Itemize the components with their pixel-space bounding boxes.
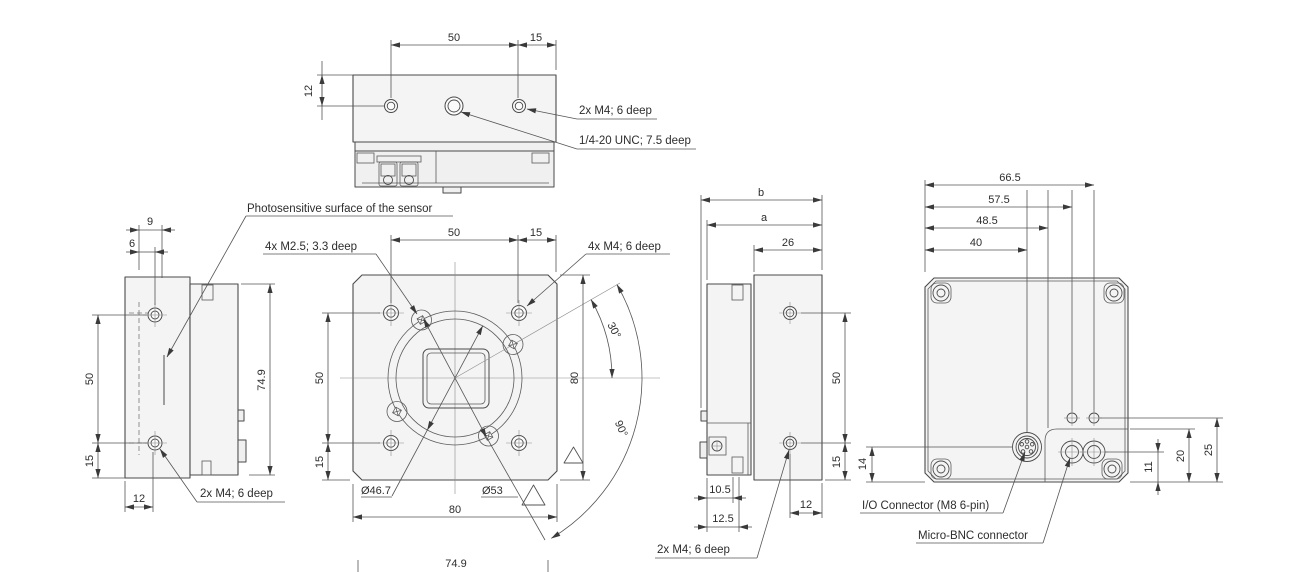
right-dim-a: a — [761, 212, 768, 224]
back-dim-57-5: 57.5 — [988, 194, 1009, 206]
right-dim-10-5: 10.5 — [709, 484, 730, 496]
top-view-tab — [443, 187, 461, 193]
back-dim-20: 20 — [1175, 450, 1187, 462]
front-view: Ø46.7 Ø53 30° 90° 50 15 50 15 80 — [263, 227, 670, 572]
front-dim-bottom-80: 80 — [449, 504, 461, 516]
front-dia-46-7: Ø46.7 — [361, 485, 391, 497]
back-dim-40: 40 — [970, 237, 982, 249]
front-label-m4: 4x M4; 6 deep — [588, 241, 661, 253]
left-label-m4: 2x M4; 6 deep — [200, 488, 273, 500]
top-m4-hole-left — [385, 100, 398, 113]
right-side-view: b a 26 50 15 10.5 12.5 12 2x M4; 6 deep — [655, 187, 851, 558]
camera-dimension-drawing: 50 15 12 2x M4; 6 deep 1/4-20 UNC; 7.5 d… — [0, 0, 1293, 572]
left-dim-9: 9 — [147, 216, 153, 228]
top-view-strip — [355, 142, 554, 151]
front-dim-top-15: 15 — [530, 227, 542, 239]
left-dim-74-9: 74.9 — [256, 369, 268, 390]
front-dim-left-15: 15 — [314, 456, 326, 468]
front-dim-left-50: 50 — [314, 372, 326, 384]
front-label-m25: 4x M2.5; 3.3 deep — [265, 241, 357, 253]
right-dim-15: 15 — [831, 456, 843, 468]
right-dim-b: b — [758, 187, 764, 199]
left-view-front-flange — [190, 284, 238, 475]
right-dim-12-5: 12.5 — [712, 513, 733, 525]
front-dim-top-50: 50 — [448, 227, 460, 239]
back-view-body — [925, 278, 1128, 482]
right-dim-26: 26 — [782, 237, 794, 249]
left-dim-50: 50 — [84, 373, 96, 385]
top-view: 50 15 12 2x M4; 6 deep 1/4-20 UNC; 7.5 d… — [303, 32, 696, 193]
datum-triangle-1 — [522, 485, 545, 505]
back-dim-14: 14 — [857, 458, 869, 470]
right-view-front-flange — [707, 284, 751, 475]
top-label-unc: 1/4-20 UNC; 7.5 deep — [579, 135, 691, 147]
back-dim-66-5: 66.5 — [999, 172, 1020, 184]
front-angle-90: 90° — [612, 419, 630, 439]
top-dim-50: 50 — [448, 32, 460, 44]
technical-drawing-page: 50 15 12 2x M4; 6 deep 1/4-20 UNC; 7.5 d… — [0, 0, 1293, 572]
left-dim-15: 15 — [84, 455, 96, 467]
left-label-photosensitive: Photosensitive surface of the sensor — [247, 203, 433, 215]
top-label-m4: 2x M4; 6 deep — [579, 105, 652, 117]
front-dim-bottom-74-9: 74.9 — [445, 558, 466, 570]
front-dim-right-80: 80 — [569, 372, 581, 384]
right-dim-50: 50 — [831, 372, 843, 384]
back-dim-48-5: 48.5 — [976, 215, 997, 227]
back-dim-25: 25 — [1203, 444, 1215, 456]
datum-triangle-2 — [564, 447, 583, 463]
top-dim-12: 12 — [303, 85, 315, 97]
left-dim-12: 12 — [133, 493, 145, 505]
back-view: 66.5 57.5 48.5 40 25 20 11 14 I/O Connec… — [857, 172, 1223, 543]
top-m4-hole-right — [513, 100, 526, 113]
right-label-m4: 2x M4; 6 deep — [657, 544, 730, 556]
front-dia-53: Ø53 — [482, 485, 503, 497]
back-dim-11: 11 — [1143, 461, 1155, 472]
top-dim-15: 15 — [530, 32, 542, 44]
back-label-bnc: Micro-BNC connector — [918, 530, 1028, 542]
back-label-io: I/O Connector (M8 6-pin) — [862, 500, 989, 512]
right-dim-12: 12 — [800, 499, 812, 511]
left-dim-6: 6 — [129, 238, 135, 250]
